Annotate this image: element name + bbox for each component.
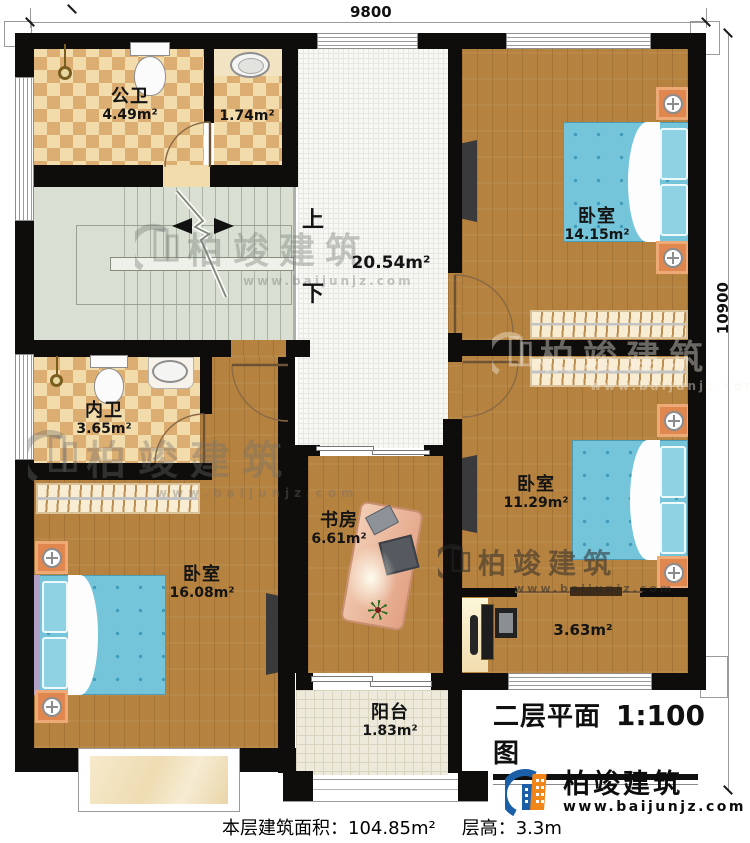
room-area: 16.08m² — [169, 585, 234, 602]
room-area: 11.29m² — [503, 495, 568, 512]
room-label-bedroom-right: 卧室 11.29m² — [503, 474, 568, 512]
room-label-study: 书房 6.61m² — [311, 510, 366, 548]
room-name: 书房 — [311, 510, 366, 531]
room-name: 内卫 — [76, 400, 131, 421]
brand-url: www.baijunjz.com — [563, 799, 746, 815]
hall-area-label: 20.54m² — [352, 253, 431, 273]
floor-height-label: 层高： — [462, 818, 516, 839]
dimension-width: 9800 — [350, 3, 392, 21]
brand-name: 柏竣建筑 — [563, 771, 746, 799]
floor-plan: 柏竣建筑 www.baijunjz.com 柏竣建筑 www.baijunjz.… — [0, 0, 750, 843]
corridor-area-label: 3.63m² — [553, 622, 612, 640]
room-area: 20.54m² — [352, 253, 431, 273]
room-area: 4.49m² — [102, 107, 157, 124]
room-label-bedroom-left: 卧室 16.08m² — [169, 564, 234, 602]
room-name: 公卫 — [102, 86, 157, 107]
room-area: 1.74m² — [219, 108, 274, 125]
floor-height-value: 3.3m — [516, 818, 562, 839]
room-area: 6.61m² — [311, 531, 366, 548]
room-name: 卧室 — [564, 206, 629, 227]
plan-scale: 1:100 — [616, 699, 705, 732]
room-name: 阳台 — [362, 702, 417, 723]
room-area: 3.65m² — [76, 421, 131, 438]
stairs-down-label: 下 — [302, 282, 324, 308]
room-label-wash: 1.74m² — [219, 108, 274, 125]
floor-area-value: 104.85m² — [348, 818, 436, 839]
room-label-private-bath: 内卫 3.65m² — [76, 400, 131, 438]
room-label-public-bath: 公卫 4.49m² — [102, 86, 157, 124]
plan-title: 二层平面图 — [493, 696, 604, 770]
room-name: 卧室 — [169, 564, 234, 585]
dimension-line-top — [30, 22, 706, 23]
dimension-line-right — [728, 33, 729, 790]
footer-stats: 本层建筑面积：104.85m² 层高：3.3m — [222, 814, 562, 840]
stairs-up-label: 上 — [302, 208, 324, 234]
room-label-bedroom-top: 卧室 14.15m² — [564, 206, 629, 244]
room-area: 1.83m² — [362, 723, 417, 740]
room-name: 卧室 — [503, 474, 568, 495]
dimension-height: 10900 — [714, 282, 732, 334]
brand-logo-icon — [505, 768, 555, 818]
room-area: 14.15m² — [564, 227, 629, 244]
brand-logo: 柏竣建筑 www.baijunjz.com — [505, 768, 746, 818]
floor-area-label: 本层建筑面积： — [222, 818, 348, 839]
room-label-balcony: 阳台 1.83m² — [362, 702, 417, 740]
room-area: 3.63m² — [553, 622, 612, 640]
